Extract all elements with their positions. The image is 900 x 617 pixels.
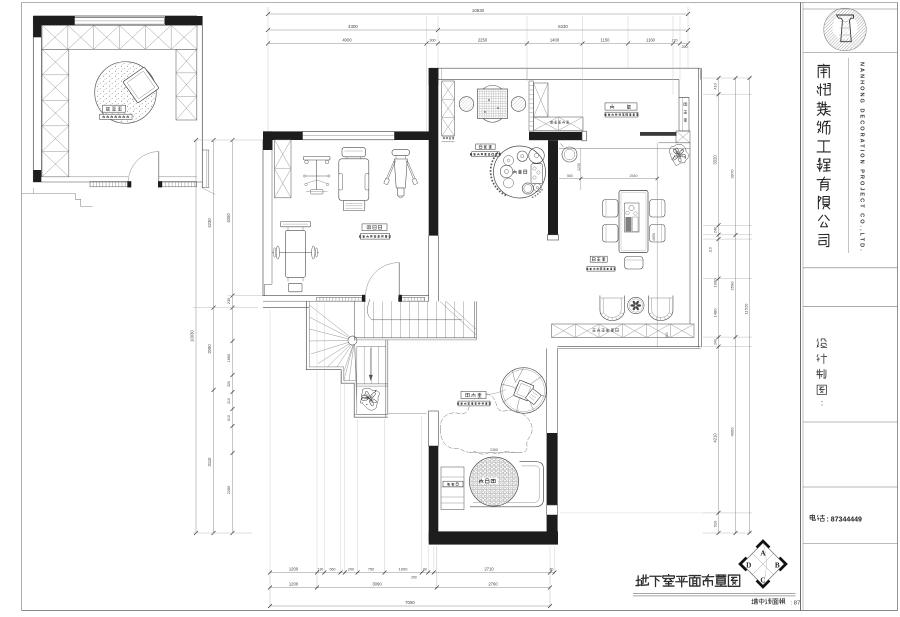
- svg-text:2090: 2090: [207, 344, 212, 354]
- svg-text:320: 320: [227, 381, 231, 387]
- svg-text:410: 410: [713, 82, 718, 89]
- svg-text:210: 210: [227, 398, 231, 404]
- svg-text:2540: 2540: [630, 174, 638, 178]
- svg-text:1150: 1150: [600, 38, 610, 43]
- svg-text:4000: 4000: [226, 213, 231, 223]
- svg-text:10030: 10030: [190, 330, 195, 342]
- svg-text:200: 200: [348, 568, 354, 572]
- svg-text:1200: 1200: [289, 582, 299, 587]
- svg-text:240: 240: [714, 339, 718, 345]
- svg-text:230: 230: [227, 298, 231, 304]
- svg-text:4960: 4960: [730, 427, 735, 437]
- svg-text:4650: 4650: [652, 233, 656, 241]
- svg-text:3110: 3110: [207, 457, 212, 467]
- svg-text:4210: 4210: [713, 433, 718, 443]
- svg-text:240: 240: [714, 227, 718, 233]
- svg-text:1160: 1160: [646, 38, 656, 43]
- svg-text:1200: 1200: [289, 567, 299, 572]
- svg-text:2710: 2710: [484, 567, 494, 572]
- svg-text:NANHONG DECORATION PROJECT CO.: NANHONG DECORATION PROJECT CO.,LTD.: [859, 62, 865, 253]
- svg-text:170: 170: [672, 39, 678, 43]
- svg-text:4230: 4230: [207, 218, 212, 228]
- svg-text:290: 290: [411, 576, 417, 580]
- svg-text:2365: 2365: [490, 448, 498, 452]
- svg-text:D: D: [746, 561, 751, 569]
- svg-text:610: 610: [227, 415, 231, 421]
- svg-text:510: 510: [713, 520, 718, 527]
- svg-text:1230: 1230: [577, 163, 581, 171]
- svg-text:130: 130: [318, 568, 324, 572]
- svg-text:300: 300: [429, 39, 435, 43]
- svg-text:4300: 4300: [348, 24, 358, 29]
- svg-text:2590: 2590: [730, 281, 735, 291]
- svg-text:10630: 10630: [472, 8, 485, 13]
- svg-text:1000: 1000: [399, 567, 409, 572]
- svg-text::: :: [821, 399, 823, 408]
- svg-text:1400: 1400: [550, 38, 560, 43]
- svg-text:C: C: [760, 576, 765, 584]
- svg-text:1660: 1660: [227, 354, 231, 362]
- svg-text:1480: 1480: [713, 308, 718, 318]
- svg-text:3090: 3090: [372, 582, 382, 587]
- svg-text:4000: 4000: [342, 38, 352, 43]
- svg-text:: 87: : 87: [791, 600, 801, 606]
- svg-text:A: A: [760, 550, 766, 558]
- svg-text:80: 80: [423, 568, 427, 572]
- svg-text:11520: 11520: [744, 303, 749, 315]
- svg-text:80: 80: [550, 568, 554, 572]
- svg-text:7050: 7050: [405, 600, 415, 605]
- svg-text:360: 360: [665, 332, 669, 338]
- svg-text:2260: 2260: [227, 486, 231, 494]
- svg-text:3320: 3320: [713, 155, 718, 165]
- svg-text:110: 110: [709, 247, 713, 253]
- svg-text:: 87344449: : 87344449: [827, 517, 863, 524]
- svg-text:1000: 1000: [713, 278, 718, 288]
- svg-text:2760: 2760: [488, 582, 498, 587]
- svg-text:B: B: [775, 561, 780, 569]
- svg-text:750: 750: [368, 568, 374, 572]
- svg-text:2250: 2250: [478, 38, 488, 43]
- svg-text:560: 560: [330, 568, 336, 572]
- svg-text:560: 560: [567, 174, 573, 178]
- svg-text:6330: 6330: [558, 24, 568, 29]
- svg-text:250: 250: [682, 45, 688, 49]
- svg-text:3970: 3970: [730, 169, 735, 179]
